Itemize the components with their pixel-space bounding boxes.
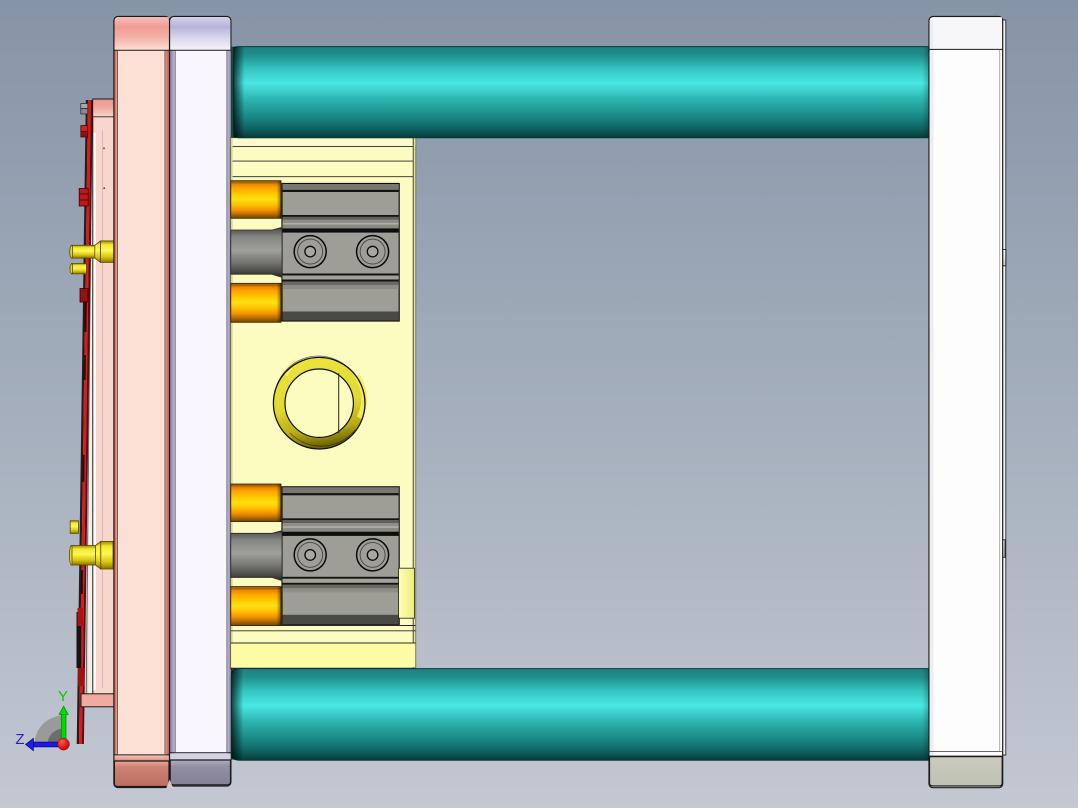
svg-text:Z: Z [15,731,24,748]
svg-text:Y: Y [58,688,68,705]
